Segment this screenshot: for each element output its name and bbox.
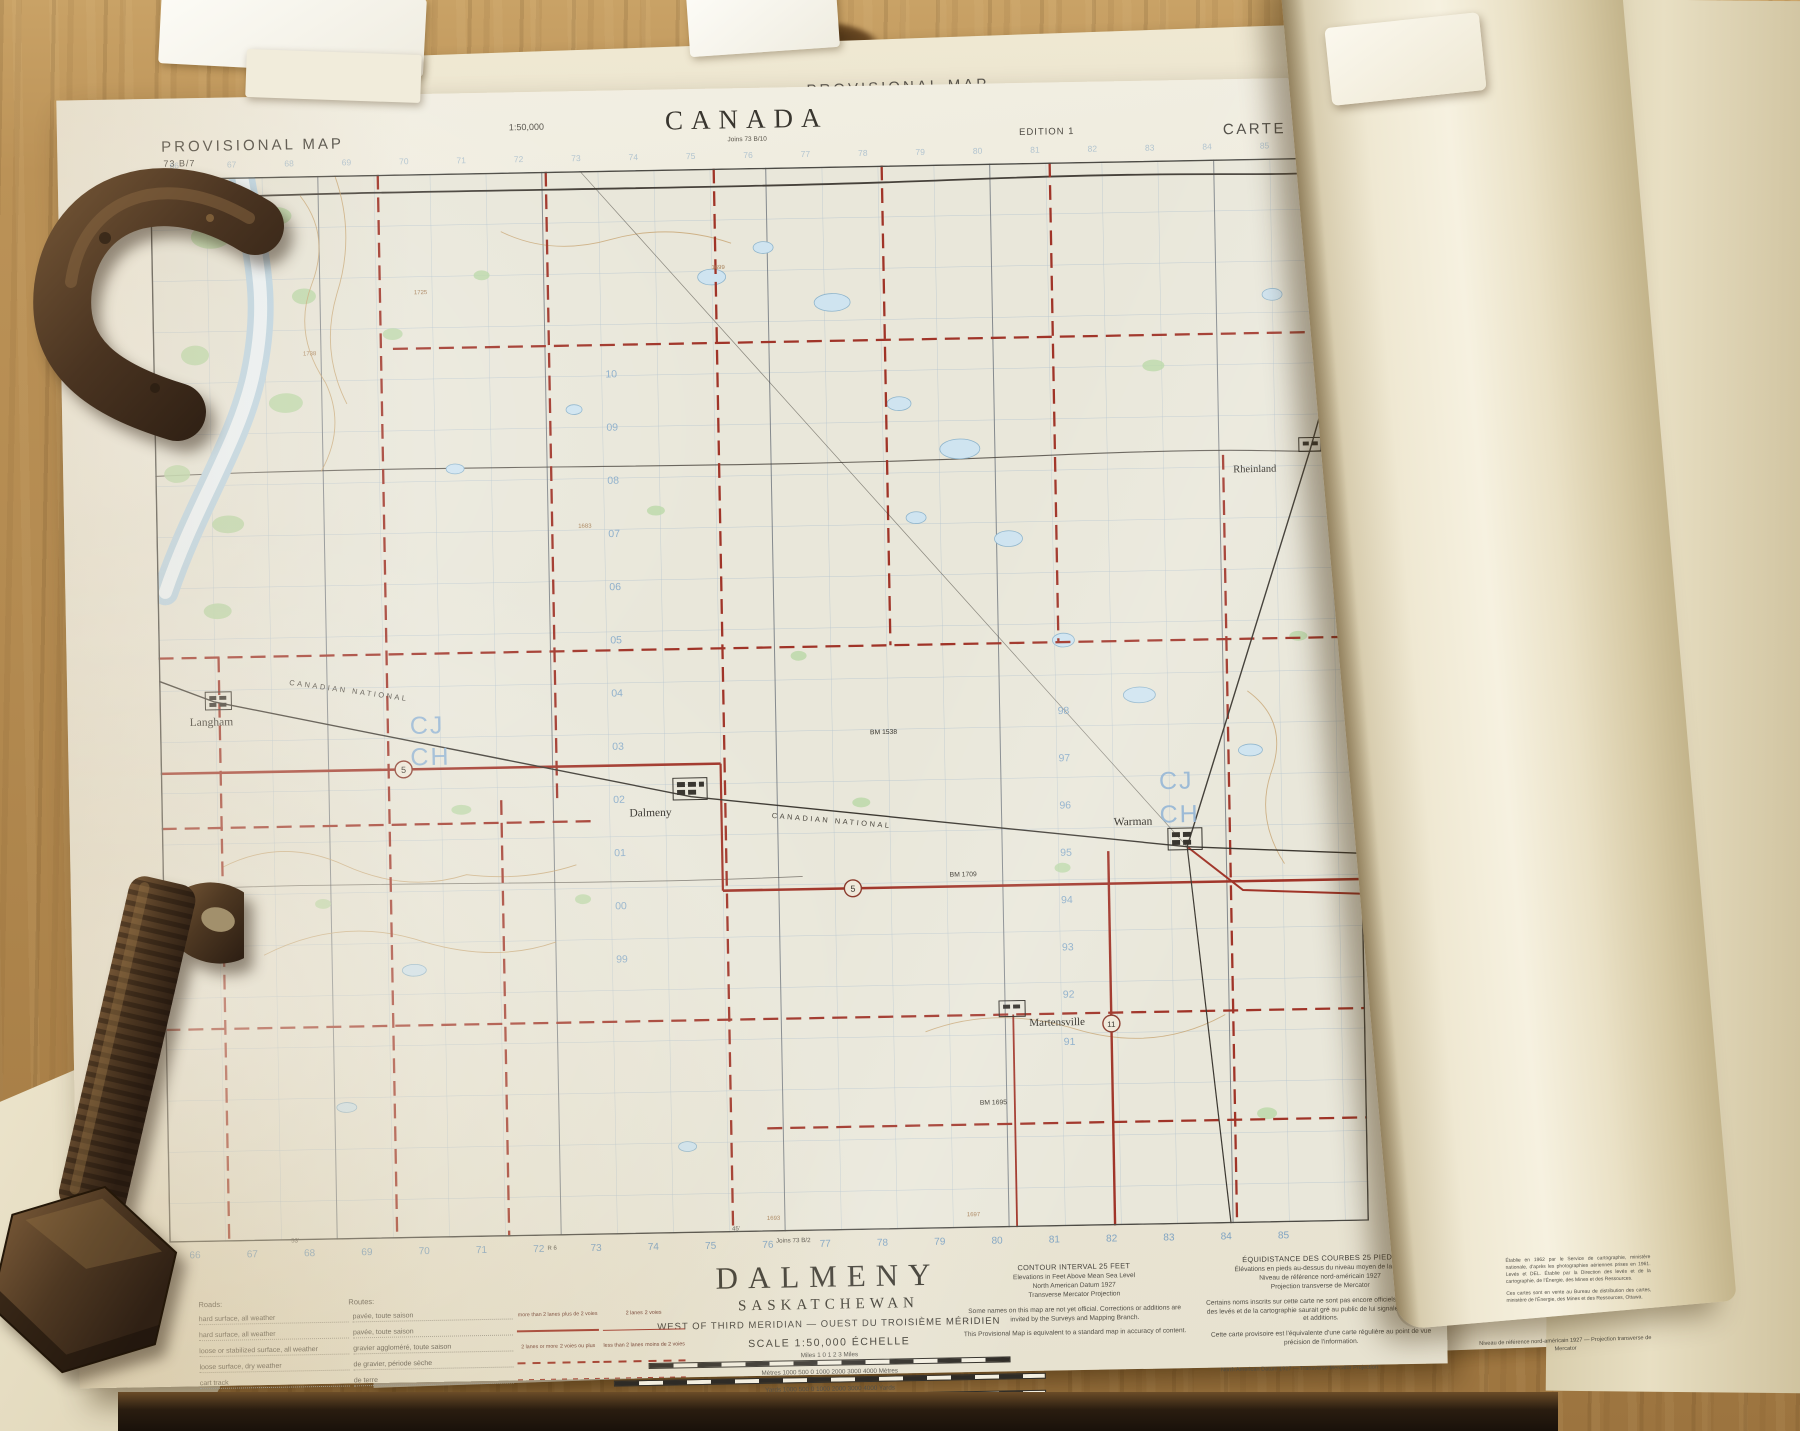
meridian-separator: — [806,1319,817,1330]
edition-label: EDITION 1 [1019,126,1075,138]
svg-text:1697: 1697 [967,1212,980,1218]
svg-text:CJ: CJ [1159,768,1194,795]
svg-text:5: 5 [850,884,855,894]
lane-label-cell: less than 2 lanes moins de 2 voies [603,1340,685,1349]
longitude-minute-mark: 53' [291,1238,299,1244]
town-label: Warman [1114,816,1153,829]
utm-easting-label: 81 [1030,145,1040,155]
road-symbol [604,1360,686,1363]
utm-easting-label: 83 [1163,1232,1174,1243]
imprint-text: Établie en 1962 par le Service de cartog… [1505,1254,1651,1310]
legend-row: hard surface, all weather pavée, toute s… [199,1307,699,1325]
utm-easting-label: 78 [858,148,868,158]
road-symbol [604,1376,686,1379]
utm-easting-label: 70 [419,1246,430,1257]
photo-of-map-on-table: PROVISIONAL MAP PROVISIONAL MAP 73 B/7 1… [0,0,1800,1431]
svg-text:1683: 1683 [578,524,592,530]
legend-row: loose or stabilized surface, all weather… [199,1339,699,1357]
svg-text:5: 5 [401,765,406,775]
utm-easting-label: 73 [571,153,581,163]
lane-label: more than 2 lanes [518,1312,561,1319]
svg-text:02: 02 [613,795,625,806]
map-face: Langham Dalmeny Warman [150,157,1369,1243]
svg-text:99: 99 [616,954,628,965]
svg-text:10: 10 [605,369,617,380]
utm-easting-label: 71 [476,1245,487,1256]
utm-easting-label: 80 [973,146,983,156]
legend-text-fr: de gravier, période sèche [353,1358,513,1370]
utm-easting-label: 79 [915,147,925,157]
utm-easting-label: 67 [247,1249,258,1260]
top-scale-label: 1:50,000 [509,122,544,133]
contour-notes-en: CONTOUR INTERVAL 25 FEET Elevations in F… [960,1260,1189,1340]
svg-text:CJ: CJ [410,712,445,739]
legend-row: hard surface, all weather pavée, toute s… [199,1323,699,1341]
township-grid [150,157,1369,1243]
svg-text:97: 97 [1058,753,1070,764]
lane-label-cell: more than 2 lanes plus de 2 voies [517,1310,599,1319]
highway-shield-11: 11 [1103,1015,1120,1032]
svg-text:94: 94 [1061,895,1073,906]
note-paragraph: Some names on this map are not yet offic… [961,1304,1189,1326]
town-label: Dalmeny [629,807,672,820]
lane-label: 2 voies [645,1310,662,1316]
road-symbol [518,1361,600,1364]
svg-text:03: 03 [612,742,624,753]
country-title: CANADA [577,101,918,138]
table-front-edge [118,1392,1558,1431]
svg-text:91: 91 [1064,1037,1076,1048]
metal-bolt [0,848,244,1431]
svg-text:09: 09 [606,423,618,434]
highway-shield-5b: 5 [844,880,861,897]
legend-row: cart track de terre [200,1371,700,1389]
svg-text:1725: 1725 [414,290,428,296]
utm-easting-label: 84 [1221,1231,1232,1242]
utm-easting-label: 70 [399,156,409,166]
under-sheet-datum-note-en: North American Datum 1927 — Transverse M… [1212,1364,1387,1375]
svg-text:06: 06 [609,582,621,593]
lane-label: less than 2 lanes [603,1342,643,1349]
svg-text:BM 1695: BM 1695 [980,1099,1008,1106]
svg-text:CH: CH [1159,801,1200,829]
utm-easting-label: 76 [743,150,753,160]
folded-paper-corner [1324,12,1486,106]
utm-easting-label: 68 [304,1248,315,1259]
utm-easting-label: 84 [1202,141,1212,151]
legend-text-fr: de terre [354,1374,514,1386]
road-symbol [603,1328,685,1331]
utm-easting-label: 82 [1106,1233,1117,1244]
range-label-east: R 6 [547,1246,556,1252]
utm-easting-label: 75 [686,151,696,161]
svg-text:11: 11 [1107,1020,1116,1029]
svg-text:95: 95 [1060,848,1072,859]
utm-easting-label: 69 [361,1247,372,1258]
legend-text-fr: pavée, toute saison [353,1310,513,1322]
imprint-paragraph: Établie en 1962 par le Service de cartog… [1505,1254,1651,1286]
lane-label-cell: 2 lanes or more 2 voies ou plus [517,1342,599,1351]
lane-label: 2 lanes or more [521,1344,558,1351]
town-label: Martensville [1029,1016,1085,1029]
svg-text:01: 01 [614,848,626,859]
longitude-minute-mark: 45' [732,1226,740,1232]
utm-easting-label: 80 [991,1235,1002,1246]
road-symbol [517,1329,599,1332]
utm-easting-label: 74 [648,1242,659,1253]
svg-text:BM 1709: BM 1709 [950,871,978,878]
town-label: Rheinland [1233,464,1277,476]
utm-easting-label: 79 [934,1237,945,1248]
legend-heading-fr: Routes: [348,1295,508,1307]
imprint-paragraph: Ces cartes sont en vente au Bureau de di… [1506,1287,1651,1305]
utm-easting-label: 73 [590,1243,601,1254]
lane-label: plus de 2 voies [562,1311,597,1318]
utm-easting-label: 85 [1260,140,1270,150]
country-title-block: CANADA Joins 73 B/10 [577,101,918,146]
legend-text-fr: gravier aggloméré, toute saison [353,1342,513,1354]
utm-easting-label: 72 [514,154,524,164]
utm-easting-label: 78 [877,1238,888,1249]
utm-easting-label: 77 [801,149,811,159]
legend-text-fr: pavée, toute saison [353,1326,513,1338]
svg-text:98: 98 [1058,706,1070,717]
svg-text:BM 1538: BM 1538 [870,729,898,736]
svg-text:1738: 1738 [303,351,317,357]
road-symbol [518,1377,600,1380]
road-legend: Roads: Routes: hard surface, all weather… [198,1291,700,1405]
svg-text:05: 05 [610,635,622,646]
map-artwork: Langham Dalmeny Warman [150,157,1369,1243]
svg-text:1693: 1693 [767,1216,781,1222]
note-paragraph: Cette carte provisoire est l'équivalente… [1205,1328,1437,1350]
svg-text:96: 96 [1059,801,1071,812]
metal-clamp [5,148,290,448]
lane-label: 2 lanes [626,1310,643,1316]
lane-label-cell: 2 lanes 2 voies [603,1308,685,1317]
lane-label: 2 voies ou plus [560,1343,595,1350]
utm-easting-label: 71 [456,155,466,165]
town-label: Langham [190,716,234,729]
utm-easting-label: 81 [1049,1234,1060,1245]
utm-easting-label: 69 [342,157,352,167]
legend-row: loose surface, dry weather de gravier, p… [199,1355,699,1373]
svg-text:CH: CH [410,744,451,772]
svg-text:93: 93 [1062,942,1074,953]
utm-easting-label: 82 [1088,144,1098,154]
svg-text:04: 04 [611,689,623,700]
svg-text:07: 07 [608,529,620,540]
paper-scrap [245,49,422,103]
utm-easting-label: 72 [533,1244,544,1255]
utm-easting-label: 83 [1145,143,1155,153]
lane-label: moins de 2 voies [645,1341,685,1348]
svg-text:00: 00 [615,901,627,912]
utm-easting-label: 74 [628,152,638,162]
svg-text:08: 08 [607,476,619,487]
svg-text:1699: 1699 [711,265,725,271]
svg-text:92: 92 [1063,990,1075,1001]
utm-easting-label: 85 [1278,1230,1289,1241]
note-paragraph: This Provisional Map is equivalent to a … [961,1328,1189,1341]
